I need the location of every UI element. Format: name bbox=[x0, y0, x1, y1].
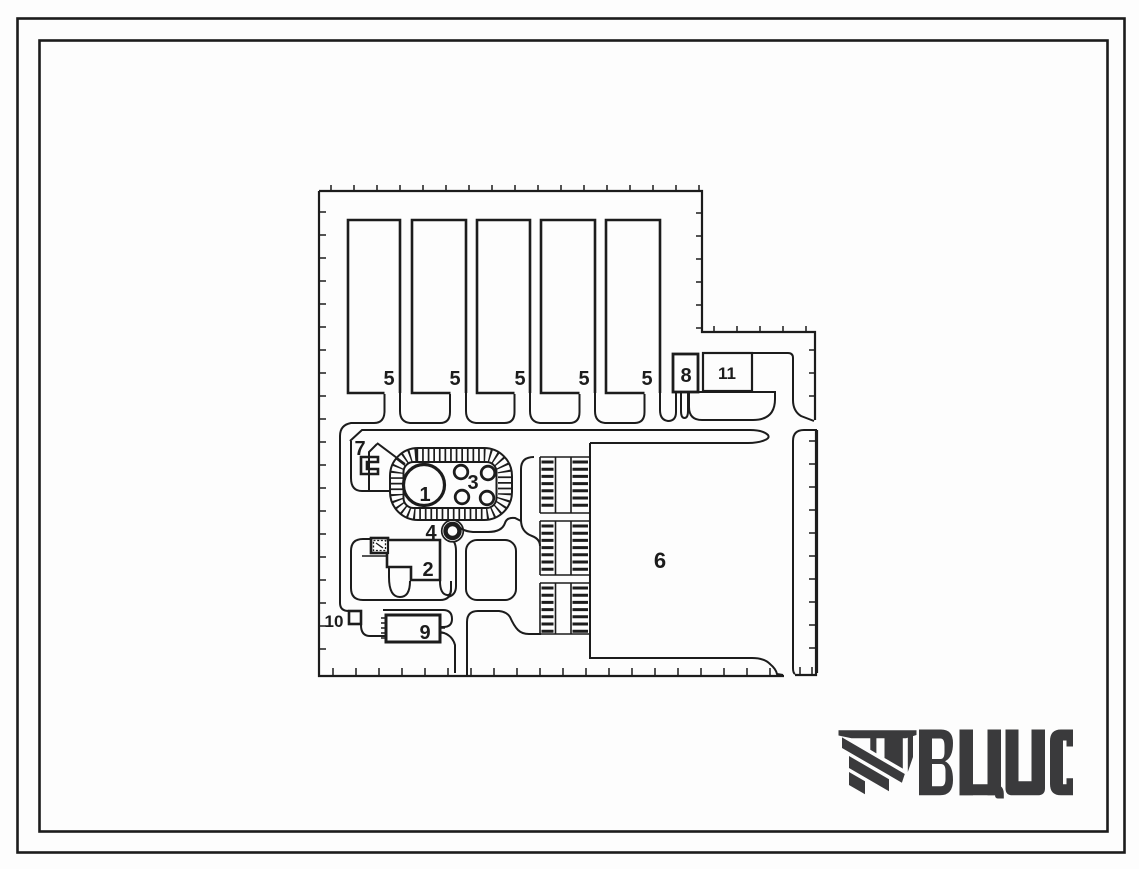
svg-text:7: 7 bbox=[354, 438, 365, 460]
svg-text:5: 5 bbox=[449, 368, 460, 390]
svg-text:5: 5 bbox=[514, 368, 525, 390]
svg-text:11: 11 bbox=[718, 364, 736, 383]
svg-text:6: 6 bbox=[654, 548, 666, 573]
svg-text:10: 10 bbox=[325, 612, 344, 631]
svg-text:9: 9 bbox=[419, 622, 430, 644]
svg-text:5: 5 bbox=[383, 368, 394, 390]
svg-text:2: 2 bbox=[422, 559, 433, 581]
svg-text:8: 8 bbox=[680, 365, 691, 387]
svg-text:3: 3 bbox=[467, 472, 478, 494]
svg-text:5: 5 bbox=[578, 368, 589, 390]
svg-text:1: 1 bbox=[419, 484, 430, 506]
svg-text:5: 5 bbox=[641, 368, 652, 390]
